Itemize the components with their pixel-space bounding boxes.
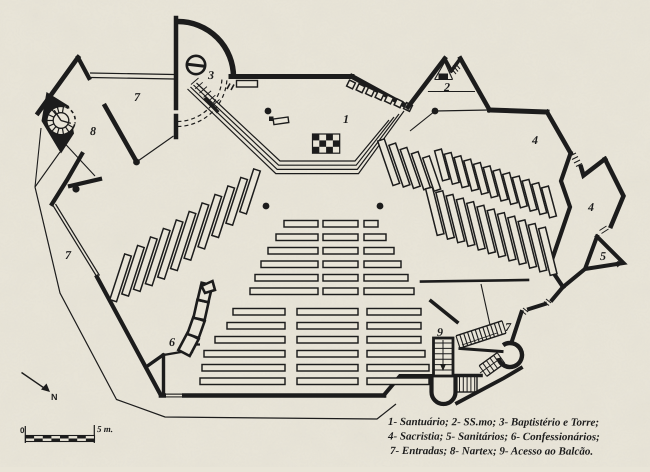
svg-text:4- Sacristia; 5- Sanitários; 6: 4- Sacristia; 5- Sanitários; 6- Confessi…	[387, 430, 600, 443]
svg-text:5: 5	[600, 249, 606, 263]
svg-text:7- Entradas; 8- Nartex; 9- Ace: 7- Entradas; 8- Nartex; 9- Acesso ao Bal…	[390, 445, 593, 458]
svg-text:3: 3	[207, 68, 214, 82]
svg-text:4: 4	[531, 133, 538, 147]
svg-text:2: 2	[443, 80, 450, 94]
svg-text:0: 0	[20, 426, 25, 435]
svg-text:8: 8	[90, 124, 96, 138]
svg-text:9: 9	[437, 325, 443, 339]
svg-text:6: 6	[169, 335, 175, 349]
svg-text:1- Santuário; 2- SS.mo; 3- Bap: 1- Santuário; 2- SS.mo; 3- Baptistério e…	[388, 416, 599, 429]
svg-text:1: 1	[343, 112, 349, 126]
svg-text:4: 4	[587, 200, 594, 214]
svg-text:5 m.: 5 m.	[97, 424, 113, 434]
svg-text:N: N	[51, 392, 58, 402]
